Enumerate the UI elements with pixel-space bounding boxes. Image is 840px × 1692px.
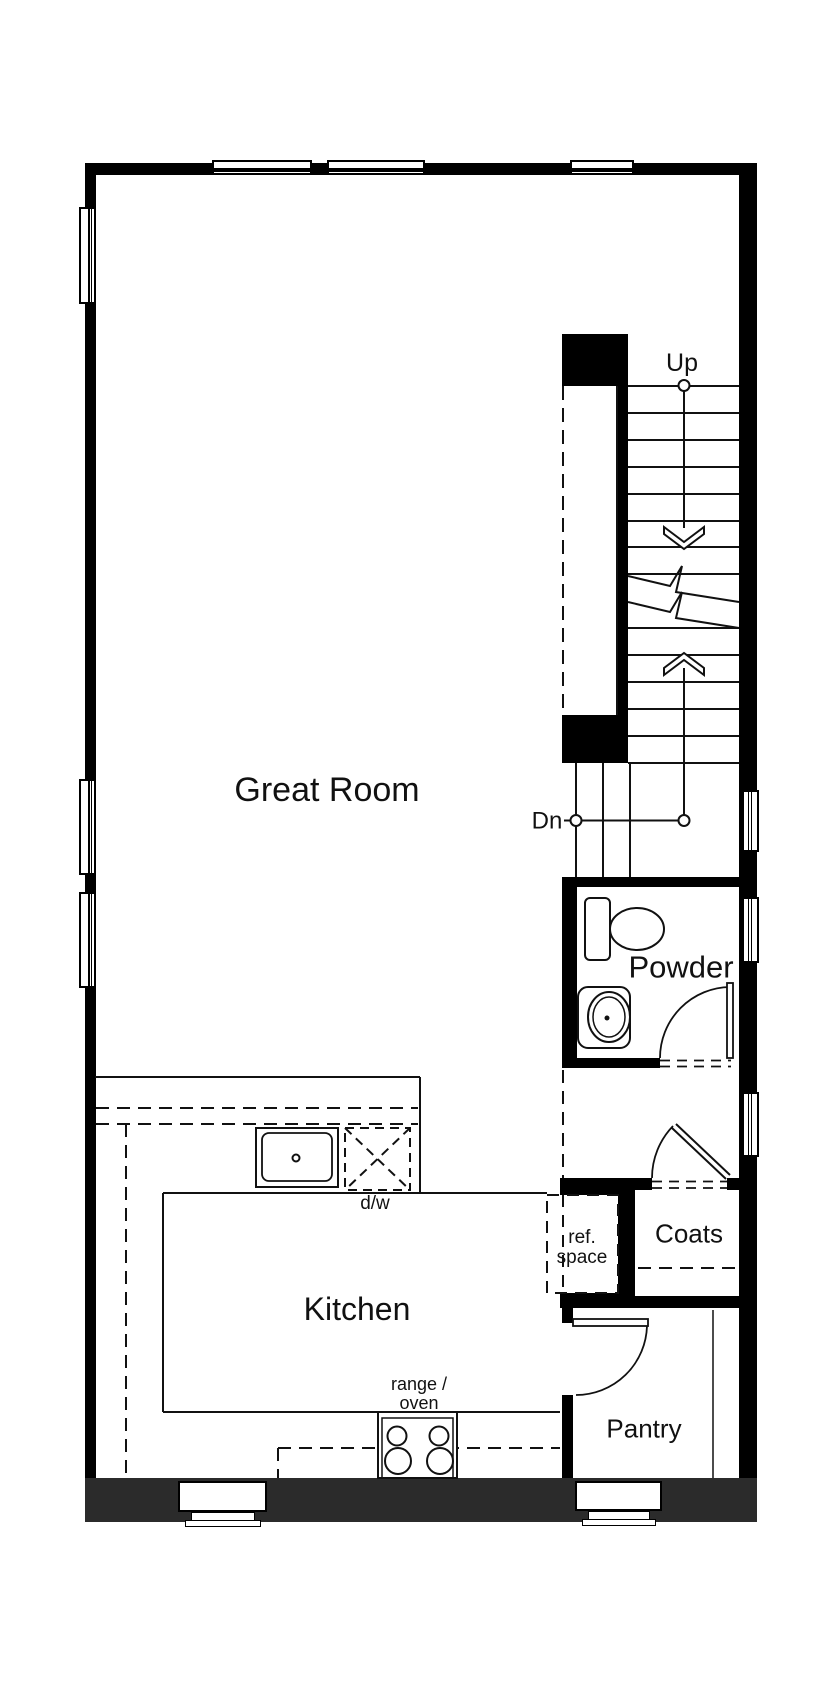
kitchen-label: Kitchen (304, 1293, 411, 1327)
coats-door (652, 1124, 730, 1188)
pedestal-sink-icon (578, 987, 630, 1048)
kitchen-sink-icon (256, 1128, 338, 1187)
coats-label: Coats (655, 1220, 723, 1247)
stairwell-shaft (563, 386, 617, 715)
ref-space-line2: space (557, 1247, 608, 1268)
range-oven-line2: oven (399, 1393, 438, 1413)
great-room-label: Great Room (234, 773, 419, 809)
down-walk-line (564, 815, 678, 826)
powder-door (660, 983, 733, 1067)
plan-linework (0, 0, 840, 1692)
up-walk-line (664, 380, 704, 826)
range-oven-label: range / oven (391, 1375, 447, 1413)
ref-space-line1: ref. (568, 1227, 595, 1248)
range-icon (378, 1412, 457, 1478)
powder-label: Powder (628, 952, 733, 985)
stair-break-lines (628, 566, 739, 628)
pantry-label: Pantry (606, 1415, 681, 1442)
floor-plan: Great Room Up Dn Powder Coats Kitchen Pa… (0, 0, 840, 1692)
up-label: Up (666, 350, 698, 376)
pantry-door (573, 1319, 648, 1395)
dishwasher-label: d/w (360, 1194, 390, 1214)
down-label: Dn (532, 808, 563, 833)
dishwasher-icon (345, 1128, 410, 1190)
range-oven-line1: range / (391, 1374, 447, 1394)
ref-space-label: ref. space (557, 1228, 608, 1268)
